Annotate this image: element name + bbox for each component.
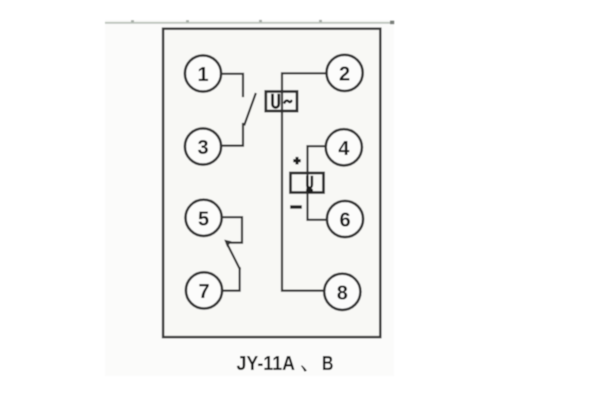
svg-text:3: 3 (197, 137, 208, 159)
svg-text:1: 1 (197, 64, 208, 86)
svg-text:B: B (322, 353, 334, 375)
svg-text:7: 7 (198, 281, 209, 303)
svg-text:4: 4 (338, 138, 350, 160)
svg-text:8: 8 (337, 282, 348, 304)
svg-text:JY-11A: JY-11A (237, 353, 296, 375)
svg-text:6: 6 (339, 210, 350, 232)
svg-text:2: 2 (339, 63, 350, 85)
svg-text:5: 5 (198, 208, 209, 230)
